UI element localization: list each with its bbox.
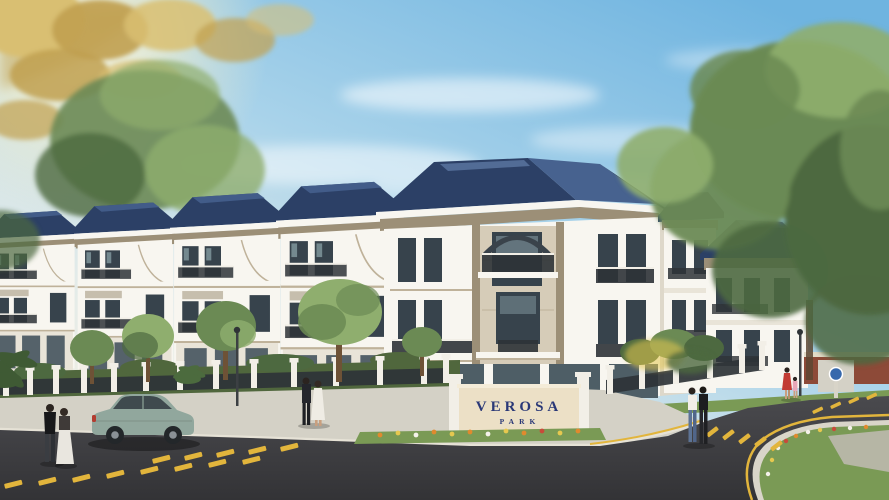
sign-name-text: VEROSA bbox=[476, 399, 563, 415]
round-traffic-sign bbox=[830, 368, 843, 381]
rendered-photo: Verosa Park residential villas — street … bbox=[0, 0, 889, 500]
sign-sub-text: PARK bbox=[500, 417, 541, 426]
